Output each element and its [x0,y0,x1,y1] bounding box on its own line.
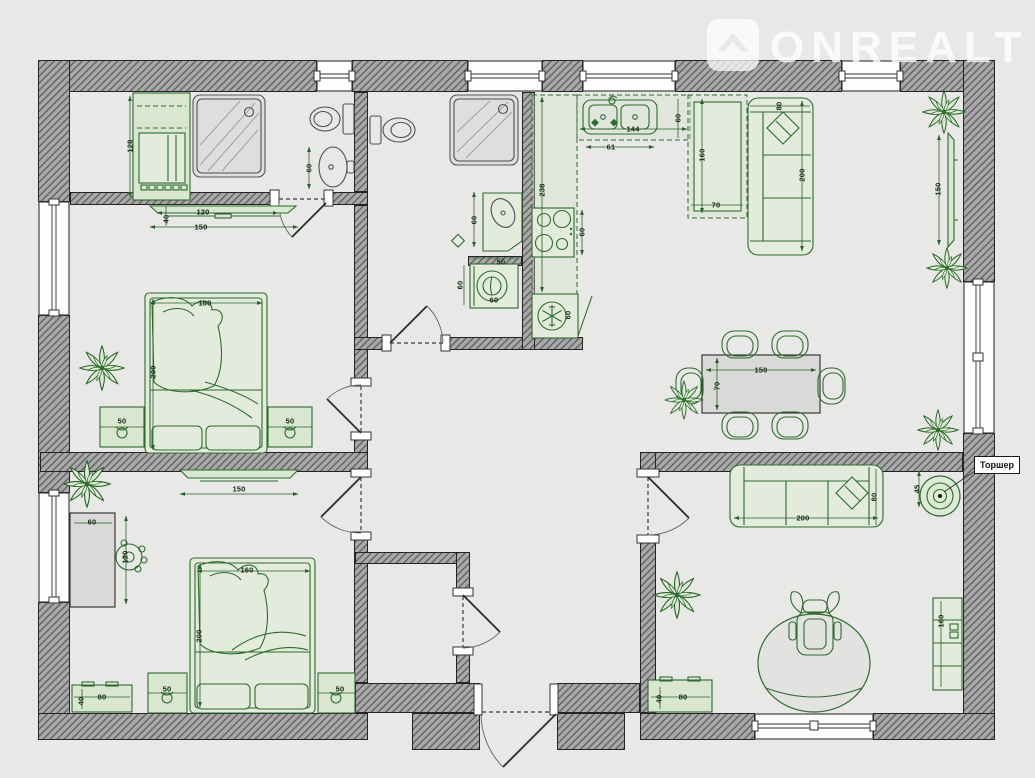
floor-lamp-callout: Торшер [974,456,1020,474]
plant-icon [927,248,967,288]
round-table [758,614,870,712]
dining-chair [722,412,758,439]
dining-chair [772,412,808,439]
dim-label: 180 [198,299,211,308]
dim-label: 200 [796,514,809,523]
dim-label: 60 [490,296,499,305]
window [752,714,876,739]
dim-label: 160 [698,148,707,161]
dim-label: 60 [470,216,479,225]
dim-label: 200 [798,168,807,181]
dim-label: 80 [98,693,107,702]
window [964,279,994,434]
window [839,61,903,91]
door-lounge [637,469,689,543]
dim-label: 128 [126,139,135,152]
door-bedroom2 [321,469,371,540]
dim-label: 80 [870,493,879,502]
shower-icon [450,95,518,165]
dim-label: 150 [194,223,207,232]
dim-label: 200 [149,365,158,378]
floor-plan: 128 120 40 150 60 180 200 50 50 60 50 60… [0,0,1035,778]
dim-label: 60 [88,518,97,527]
plant-icon [80,346,124,390]
door-closet [453,588,500,655]
dim-label: 150 [232,485,245,494]
dim-label: 80 [679,693,688,702]
vanity-sink [452,193,522,251]
shelf-unit [933,598,962,690]
dim-label: 60 [564,311,573,320]
door-bedroom1 [327,378,371,440]
door-entrance [474,684,558,767]
dining-chair [722,331,758,358]
dining-table [676,331,845,439]
desk [70,513,147,607]
dim-label: 60 [305,164,314,173]
dim-label: 50 [163,685,172,694]
shower-icon [193,95,265,177]
double-bed [145,293,267,453]
dining-chair [772,331,808,358]
dim-label: 200 [195,629,204,642]
plant-icon [64,461,110,507]
window [39,199,69,316]
window [580,61,678,91]
plant-icon [923,91,965,133]
dim-label: 60 [674,114,683,123]
dim-label: 50 [118,417,127,426]
window [465,61,545,91]
fridge-icon [532,294,592,338]
dim-label: 160 [240,566,253,575]
dim-label: 60 [578,228,587,237]
dim-label: 120 [196,208,209,217]
dim-label: 144 [626,125,639,134]
dim-label: 40 [162,215,171,224]
dim-label: 40 [655,695,664,704]
dim-label: 238 [538,183,547,196]
tv-wall-mounted [180,470,298,481]
stove-icon [532,208,574,257]
dim-label: 60 [456,281,465,290]
dim-label: 50 [286,417,295,426]
wardrobe-laundry-column [133,93,190,200]
dim-label: 70 [712,201,721,210]
dim-label: 150 [934,182,943,195]
sink-icon [319,147,354,187]
plant-icon [665,381,703,419]
toilet-icon [370,116,415,144]
dim-label: 50 [497,258,506,267]
door-bathroom2 [382,306,450,351]
window [39,490,69,603]
dim-label: 45 [913,485,922,494]
plant-icon [918,410,958,450]
dim-label: 120 [121,550,130,563]
dining-chair [818,368,845,404]
tv-wall-mounted [948,133,958,247]
dim-label: 160 [937,614,946,627]
dim-label: 70 [713,382,722,391]
dim-label: 150 [754,366,767,375]
double-bed [190,558,315,713]
dim-label: 50 [336,685,345,694]
plant-icon [654,572,700,618]
window [314,61,355,91]
dim-label: 61 [607,143,616,152]
dim-label: 40 [77,697,86,706]
toilet-icon [310,104,354,134]
plan-drawing-layer [0,0,1035,778]
dim-label: 80 [775,102,784,111]
tv-stand-icon [150,206,296,218]
